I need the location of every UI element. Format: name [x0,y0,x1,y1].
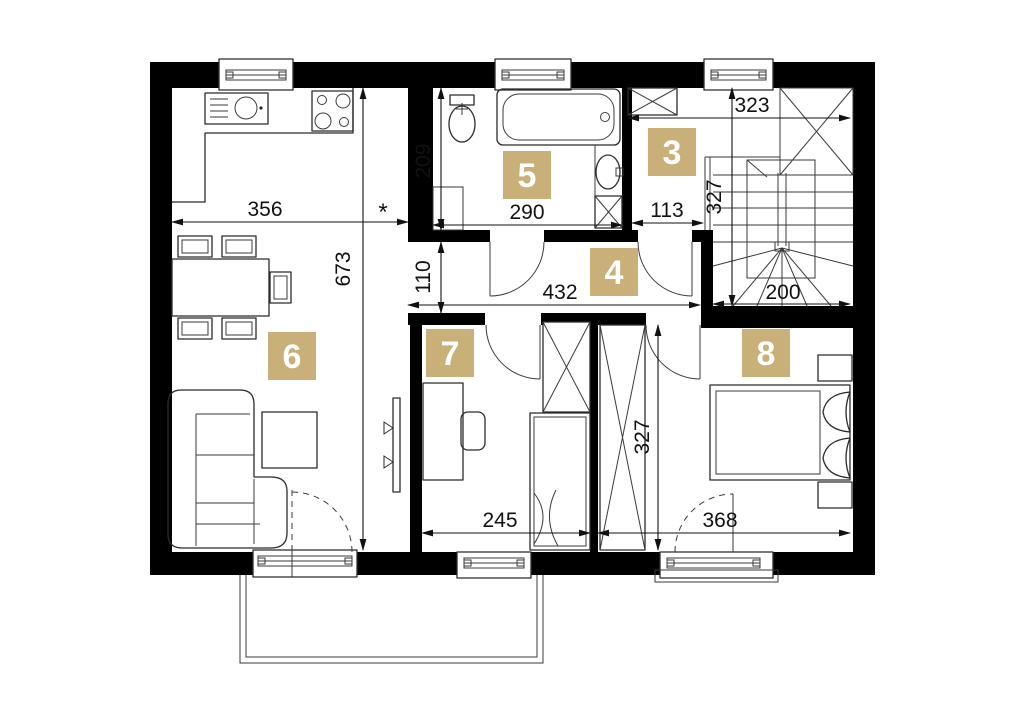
stairs [705,88,853,306]
wall-left [150,62,172,575]
dim-footnote-marker: * [378,199,387,226]
dim-stair-bottom-width: 200 [765,281,800,304]
dim-rooms-height: 327 [631,419,654,454]
stove-icon [312,91,353,131]
terrace [240,575,543,663]
nightstand-icon [818,355,852,381]
wall-corridor-top-a [408,230,490,242]
room-number: 3 [663,134,682,172]
chair-icon [222,236,256,257]
dim-kitchen-width: 356 [247,198,282,221]
dim-bath-height: 209 [412,143,435,178]
window-kitchen [219,59,293,90]
wall-bath-hall3 [622,88,632,230]
window-stairwell [704,59,773,90]
wall-room6-room7 [410,313,422,552]
door-hall3 [638,242,692,296]
desk-icon [423,383,463,480]
wall-room7-room8 [590,325,598,552]
stair-center-rail [775,173,789,251]
kitchen-sink-icon [205,93,268,124]
chair-icon [222,318,256,339]
chair-icon [178,236,212,257]
door-room8 [646,325,700,379]
chair-icon [270,272,291,303]
stair-treads [713,175,853,242]
wardrobe-icon [628,88,677,115]
dim-corridor-height: 110 [412,260,435,293]
dim-bath-width: 290 [509,201,544,224]
floor-plan-page: 356 * 673 209 290 113 323 327 200 110 43… [0,0,1024,724]
dim-room8-width: 368 [702,509,737,532]
dim-stair-height: 327 [703,179,726,214]
wall-corridor-stairs-stub [701,230,713,308]
room-badge-5: 5 [503,151,551,199]
dining-table-icon [172,259,269,316]
coffee-table-icon [262,412,317,468]
toilet-icon [449,95,475,142]
balcony-door-opening [253,550,357,577]
chair-icon [178,318,212,339]
nightstand-icon [818,482,852,508]
window-bathroom [495,59,571,90]
door-balcony-dashed [292,490,352,552]
room-badge-3: 3 [648,128,696,176]
kitchen-counter [172,88,353,202]
room-number: 7 [441,335,460,373]
room-number: 4 [605,254,624,292]
sofa-cushion-lines [196,414,260,546]
door-room7 [486,325,540,379]
floor-plan-svg: 356 * 673 209 290 113 323 327 200 110 43… [0,0,1024,724]
room-badge-6: 6 [268,332,316,380]
room-badge-7: 7 [426,329,474,377]
wall-stairs-bottom [701,306,875,328]
dim-room7-width: 245 [482,509,517,532]
dining-set [172,236,291,339]
double-bed-icon [710,385,850,480]
bath-cabinet [433,187,463,230]
wardrobe-icon [543,322,590,412]
tv-icon [384,398,400,492]
bathtub-icon [497,89,620,145]
kitchen [172,88,353,202]
window-room7 [457,552,531,578]
wall-corridor-top-b [544,230,638,242]
living-room-furniture [168,390,400,548]
dim-living-height: 673 [332,251,355,286]
dim-stair-top-width: 323 [734,94,769,117]
room-number: 5 [518,157,537,195]
desk-chair-icon [461,412,485,450]
room-number: 8 [757,335,776,373]
dim-corridor-width: 432 [542,281,577,304]
window-room8 [655,552,778,582]
dim-hall-width: 113 [650,199,683,222]
doors [292,242,733,552]
room-number: 6 [283,338,302,376]
washing-machine-icon [595,196,622,228]
stair-flight-outline [747,160,815,278]
door-bathroom [490,242,544,296]
room-badge-4: 4 [590,248,638,296]
washbasin-icon [595,145,623,196]
room-badge-8: 8 [742,329,790,377]
single-bed-icon [530,413,590,550]
stair-void-box [780,88,853,175]
